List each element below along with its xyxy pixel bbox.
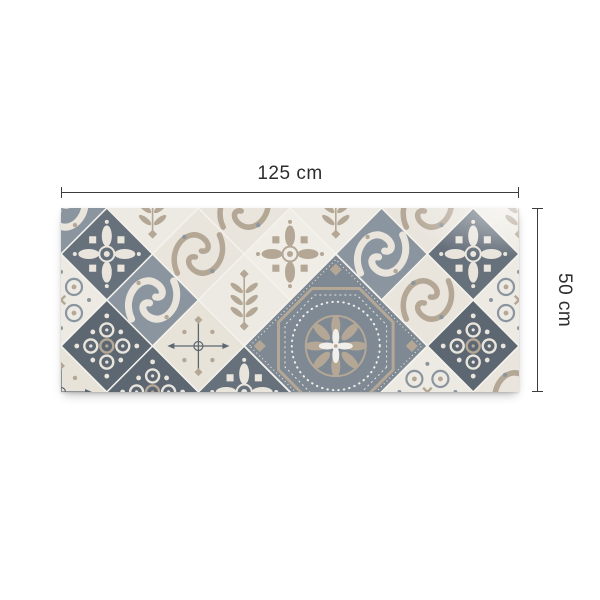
figure-canvas: 125 cm 50 cm xyxy=(0,0,600,600)
width-dimension-label: 125 cm xyxy=(61,163,519,185)
height-dimension-tick-bottom xyxy=(532,391,543,392)
width-dimension-line xyxy=(61,192,519,193)
height-dimension-tick-top xyxy=(532,208,543,209)
width-dimension-tick-left xyxy=(61,187,62,198)
height-dimension-label: 50 cm xyxy=(552,208,576,392)
width-dimension-tick-right xyxy=(518,187,519,198)
height-dimension-line xyxy=(537,208,538,392)
rug-product-image xyxy=(61,208,519,392)
rug-pattern-svg xyxy=(61,208,519,392)
